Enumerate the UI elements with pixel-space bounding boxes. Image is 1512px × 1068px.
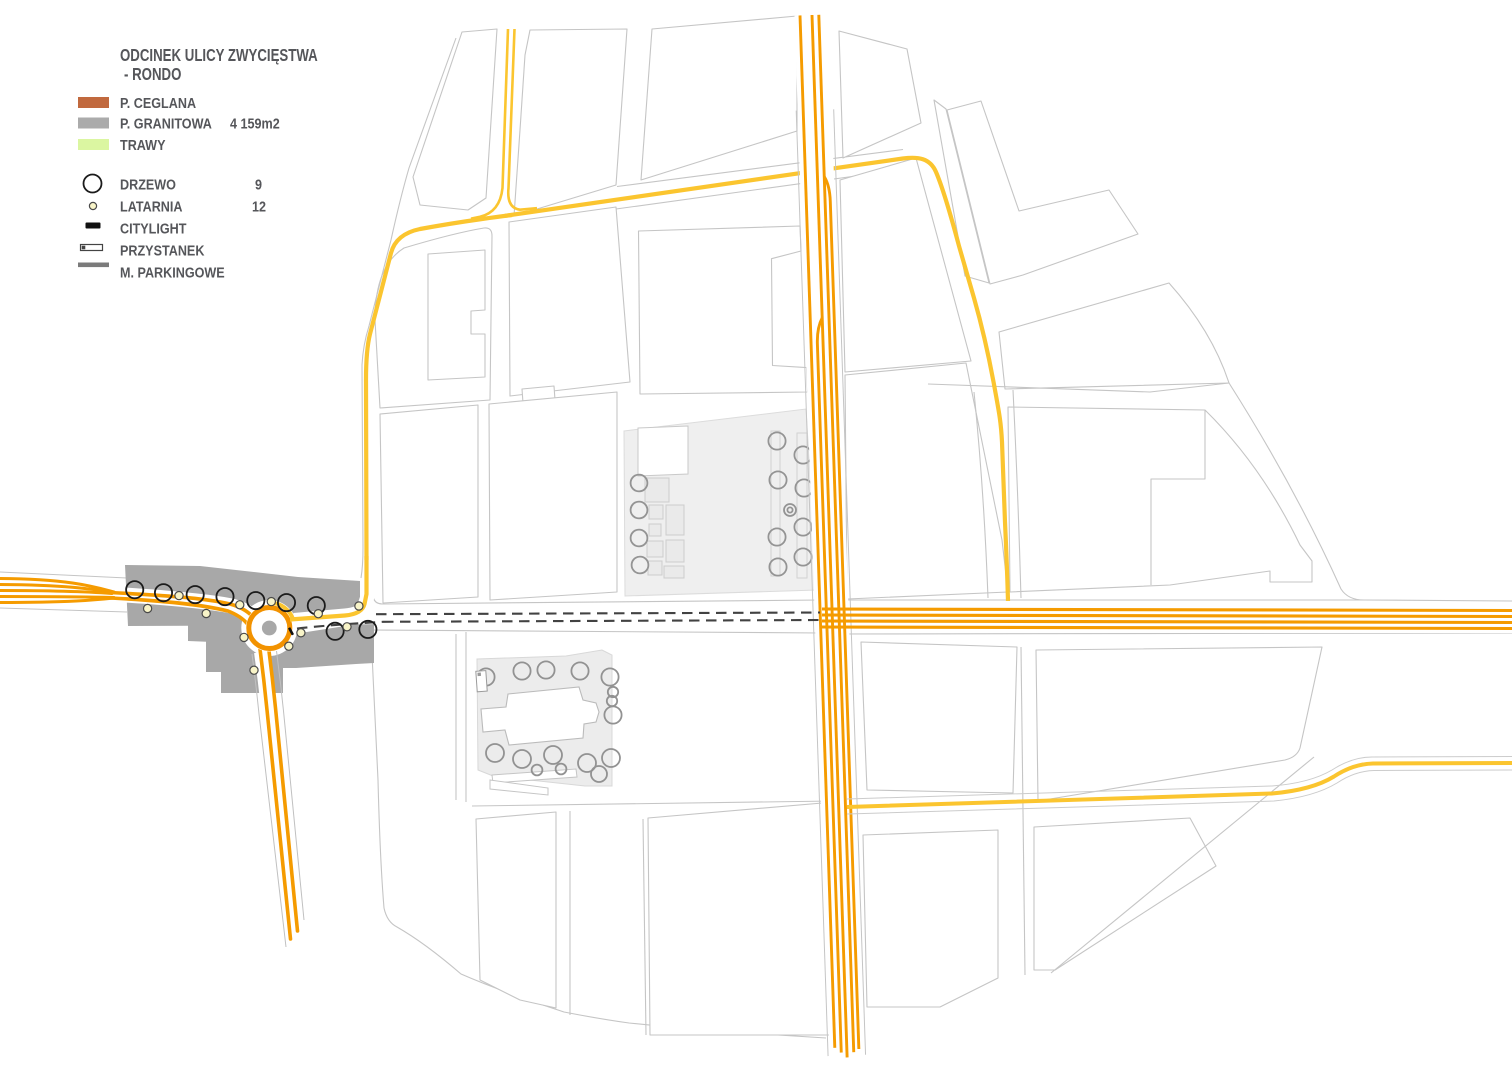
svg-text:12: 12 [252,197,266,214]
svg-text:DRZEWO: DRZEWO [120,175,176,192]
svg-text:P. GRANITOWA: P. GRANITOWA [120,114,212,131]
svg-text:CITYLIGHT: CITYLIGHT [120,219,187,236]
svg-text:TRAWY: TRAWY [120,136,166,153]
svg-text:- RONDO: - RONDO [124,65,181,84]
svg-text:4 159m2: 4 159m2 [230,114,280,131]
svg-text:9: 9 [255,175,262,192]
svg-text:P. CEGLANA: P. CEGLANA [120,94,196,111]
svg-text:LATARNIA: LATARNIA [120,197,182,214]
svg-text:ODCINEK ULICY ZWYCIĘSTWA: ODCINEK ULICY ZWYCIĘSTWA [120,46,318,65]
svg-text:M. PARKINGOWE: M. PARKINGOWE [120,263,225,280]
svg-text:PRZYSTANEK: PRZYSTANEK [120,241,204,258]
